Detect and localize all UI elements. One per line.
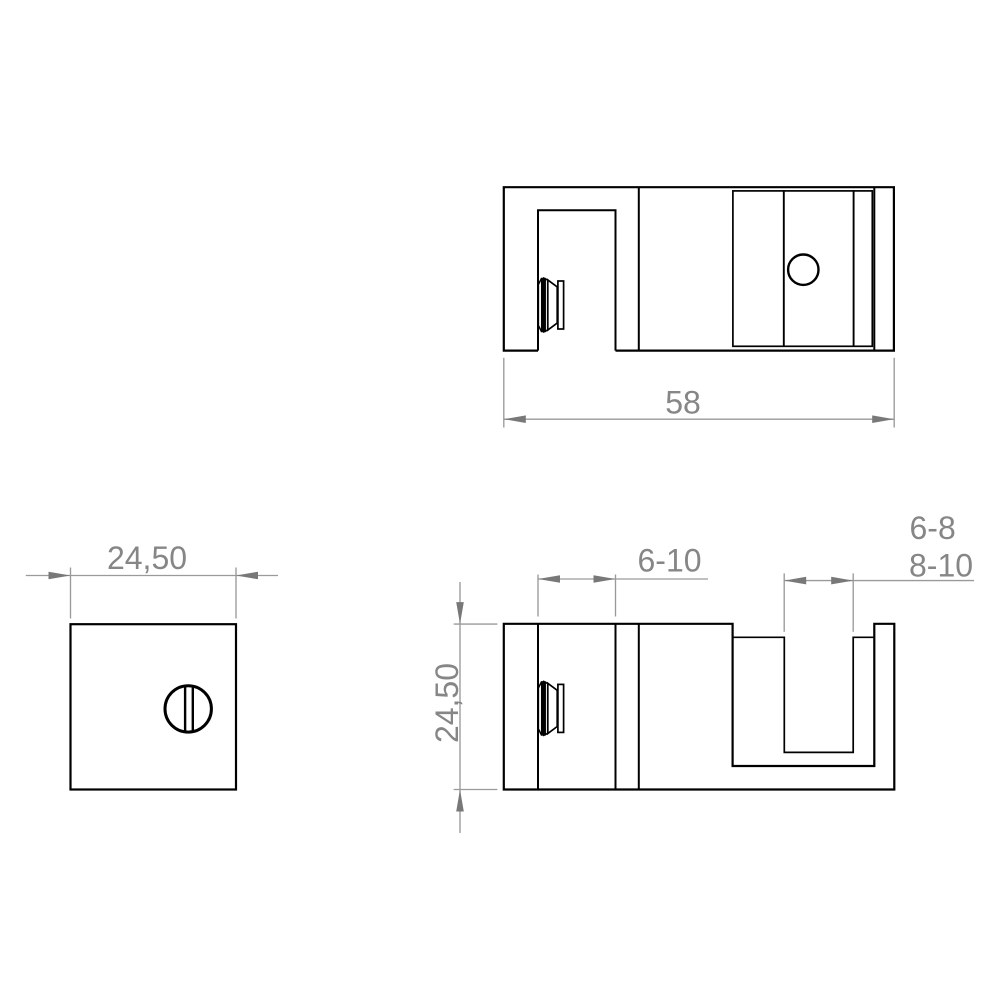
svg-text:24,50: 24,50	[429, 663, 465, 743]
svg-text:58: 58	[665, 385, 701, 421]
svg-text:6-8: 6-8	[910, 510, 956, 546]
svg-text:24,50: 24,50	[107, 540, 187, 576]
svg-text:8-10: 8-10	[909, 548, 973, 584]
svg-text:6-10: 6-10	[638, 543, 702, 579]
